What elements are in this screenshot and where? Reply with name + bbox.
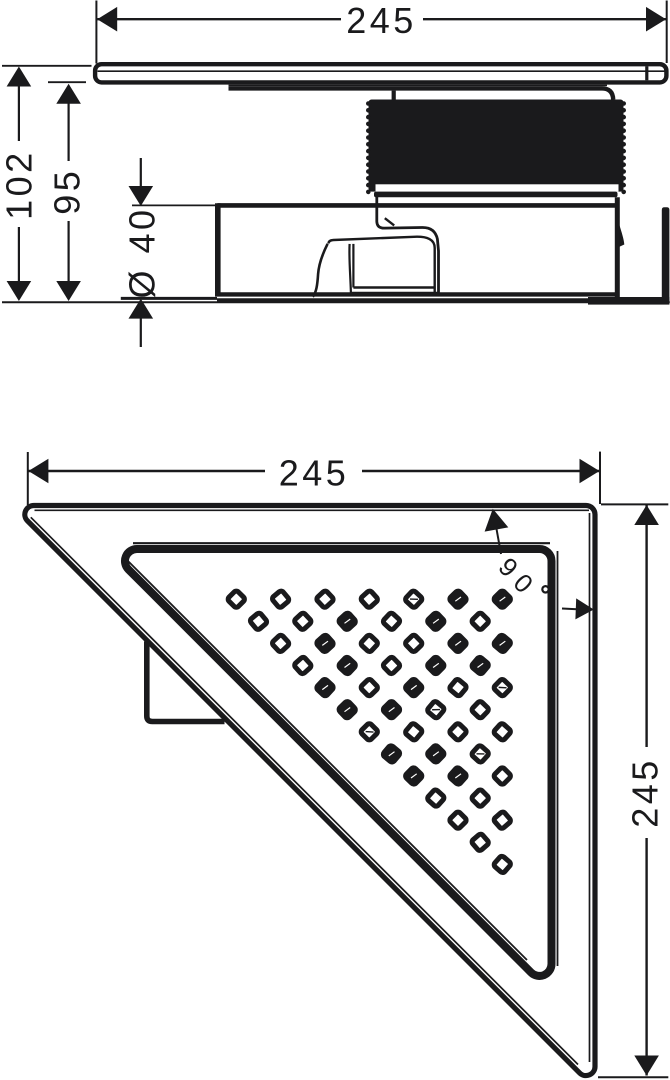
svg-text:245: 245 <box>279 453 350 494</box>
svg-text:245: 245 <box>346 0 417 41</box>
svg-text:Ø 40: Ø 40 <box>122 206 163 298</box>
svg-text:95: 95 <box>46 168 87 215</box>
svg-text:245: 245 <box>624 757 665 828</box>
svg-text:102: 102 <box>0 149 40 220</box>
